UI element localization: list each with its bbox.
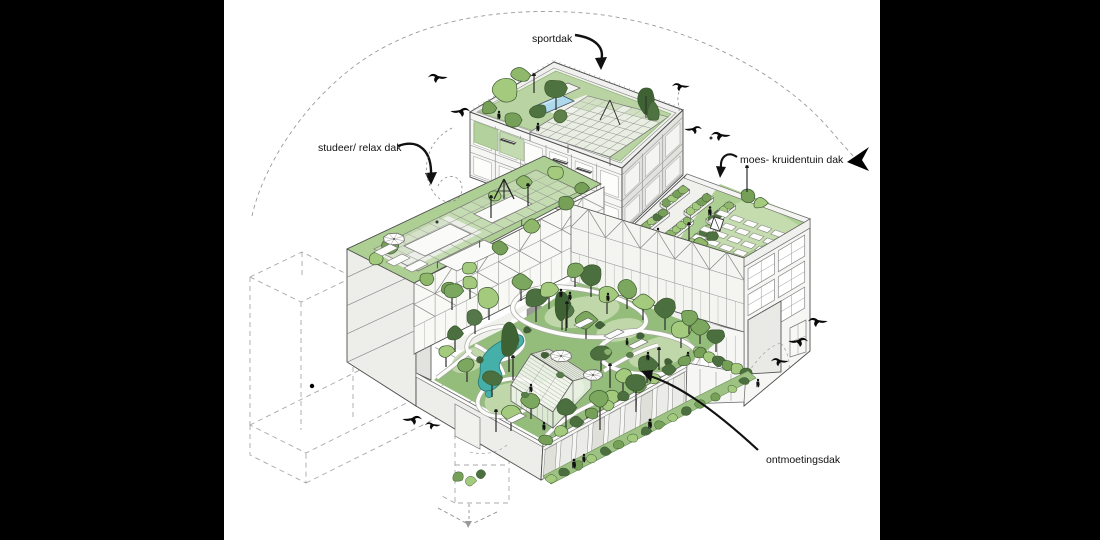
svg-text:studeer/ relax dak: studeer/ relax dak (318, 142, 402, 154)
svg-text:sportdak: sportdak (532, 33, 573, 45)
svg-text:ontmoetingsdak: ontmoetingsdak (766, 454, 841, 466)
svg-text:moes- kruidentuin dak: moes- kruidentuin dak (740, 154, 844, 166)
